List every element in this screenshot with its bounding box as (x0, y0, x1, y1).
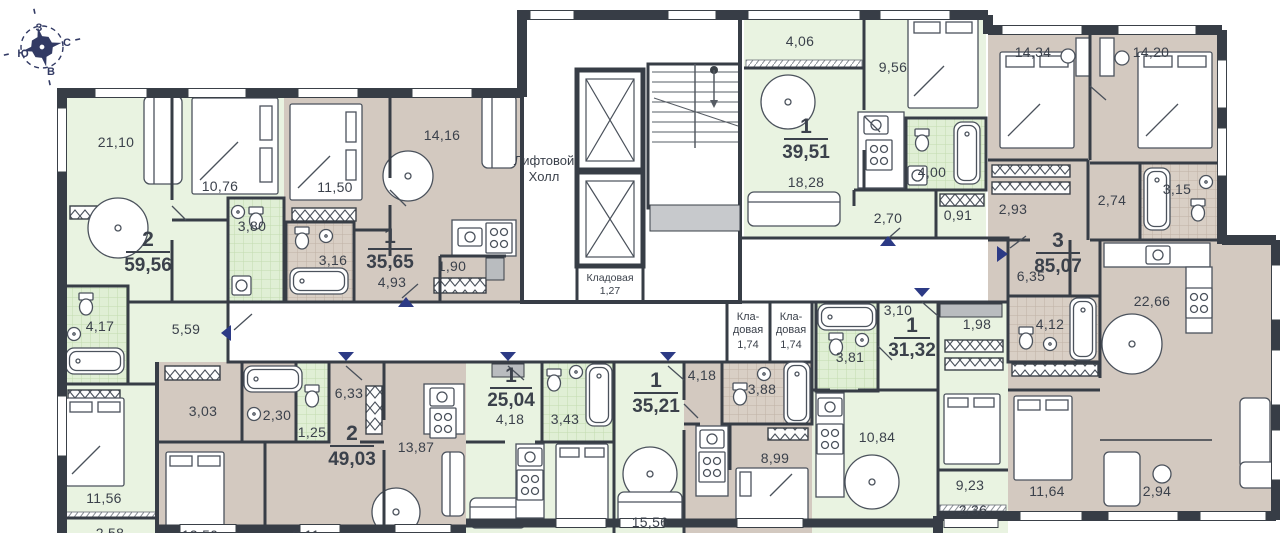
sofa-icon (144, 96, 182, 184)
room-label-14-20: 14,20 (1133, 44, 1170, 60)
bed-icon (944, 394, 1000, 464)
sink-icon (248, 408, 261, 421)
storage-left-area-label: 1,74 (737, 339, 758, 351)
apt-35-21-total: 35,21 (632, 396, 680, 417)
toilet-icon (1191, 199, 1205, 221)
room-label-2-74: 2,74 (1098, 192, 1126, 208)
room-label-3-81: 3,81 (836, 349, 864, 365)
balcony-railing (746, 60, 862, 67)
apt-25-04-rooms: 1 (505, 364, 517, 387)
bathtub-icon (586, 364, 612, 426)
room-label-14-34: 14,34 (1015, 44, 1052, 60)
kitchen-icon (696, 426, 728, 496)
toilet-icon (915, 129, 929, 151)
entrance-arrow-icon (660, 352, 676, 361)
storage-left-label-2: довая (733, 324, 763, 336)
bathtub-icon (244, 366, 302, 392)
room-label-21-10: 21,10 (98, 134, 135, 150)
utility-shaft (486, 258, 504, 280)
room-label-9-56: 9,56 (879, 59, 907, 75)
room-label-0-91: 0,91 (944, 207, 972, 223)
room-label-3-16: 3,16 (319, 252, 347, 268)
sink-icon (1200, 176, 1213, 189)
apt-39-51-rooms: 1 (800, 115, 812, 138)
room-label-10-84: 10,84 (859, 429, 896, 445)
apt-59-56-rooms: 2 (142, 228, 154, 251)
elevator-icon (577, 70, 643, 170)
room-label-15-56: 15,56 (632, 514, 669, 530)
room-label-14-16: 14,16 (424, 127, 461, 143)
apt-85-07-rooms: 3 (1052, 229, 1064, 252)
entrance-arrow-icon (914, 288, 930, 297)
storage-right-label-1: Кла- (780, 311, 803, 323)
compass-north-label: С (63, 37, 71, 49)
corridor-b (740, 238, 1008, 302)
entrance-arrow-icon (338, 352, 354, 361)
bathtub-icon (954, 122, 980, 184)
floor-plan-drawing: З С Ю В 21,10 10,76 3,80 4,17 5,59 11,56… (0, 0, 1280, 533)
room-label-1-98: 1,98 (963, 316, 991, 332)
room-label-8-99: 8,99 (761, 450, 789, 466)
room-label-10-76: 10,76 (202, 178, 239, 194)
sofa-icon (748, 192, 840, 226)
sink-icon (232, 206, 245, 219)
stairs-icon (652, 64, 738, 148)
kitchen-icon (452, 220, 516, 256)
room-label-3-88: 3,88 (748, 381, 776, 397)
room-label-4-93: 4,93 (378, 274, 406, 290)
apt-35-65-total: 35,65 (366, 252, 414, 273)
stairs-area (648, 64, 740, 208)
apt-49-03-total: 49,03 (328, 449, 376, 470)
storage-hall-area-label: 1,27 (600, 285, 621, 297)
bathtub-icon (1144, 168, 1170, 230)
sink-icon (68, 328, 81, 341)
elevator-icon (577, 172, 643, 266)
apt-35-65-rooms: 1 (384, 225, 396, 248)
bed-icon (736, 468, 808, 526)
compass-south-label: Ю (17, 48, 28, 60)
apt-59-56-total: 59,56 (124, 255, 172, 276)
room-label-4-06: 4,06 (786, 33, 814, 49)
storage-right-area-label: 1,74 (780, 339, 801, 351)
room-label-2-70: 2,70 (874, 210, 902, 226)
bed-icon (66, 398, 124, 486)
table-icon (845, 455, 899, 509)
sofa-icon (442, 452, 464, 516)
corridor-a (228, 302, 727, 362)
room-label-4-18a: 4,18 (496, 411, 524, 427)
toilet-icon (295, 227, 309, 249)
bed-icon (908, 18, 978, 108)
kitchen-icon (816, 393, 844, 497)
room-label-4-18b: 4,18 (688, 367, 716, 383)
kitchen-icon (516, 444, 544, 518)
apt-85-07-total: 85,07 (1034, 256, 1082, 277)
sink-icon (856, 334, 869, 347)
sofa-icon (482, 94, 516, 168)
room-label-5-59: 5,59 (172, 321, 200, 337)
entrance-arrow-icon (500, 352, 516, 361)
elevator-hall-label-2: Холл (529, 169, 560, 184)
compass-west-label: З (36, 22, 43, 34)
bed-icon (166, 452, 224, 533)
room-label-11-50: 11,50 (317, 179, 353, 195)
elevator-stairs (577, 64, 740, 266)
room-label-11-56: 11,56 (86, 490, 122, 506)
room-label-1-90: 1,90 (438, 258, 466, 274)
bathtub-icon (818, 304, 876, 330)
toilet-icon (79, 293, 93, 315)
bathtub-icon (290, 268, 348, 294)
room-label-2-94: 2,94 (1143, 483, 1171, 499)
apt-25-04-total: 25,04 (487, 390, 535, 411)
bed-icon (556, 444, 608, 520)
toilet-icon (733, 383, 747, 405)
apt-35-21-rooms: 1 (650, 369, 662, 392)
stairs-landing (650, 205, 740, 231)
room-label-4-17: 4,17 (86, 318, 114, 334)
apt-39-51-total: 39,51 (782, 142, 830, 163)
table-icon (1102, 314, 1162, 374)
room-label-2-30: 2,30 (263, 407, 291, 423)
storage-right-label-2: довая (776, 324, 806, 336)
apt-49-03-rooms: 2 (346, 422, 358, 445)
room-label-3-03: 3,03 (189, 403, 217, 419)
kitchen-icon (424, 384, 464, 438)
washer-icon (232, 276, 251, 295)
room-label-9-23: 9,23 (956, 477, 984, 493)
room-label-11-64: 11,64 (1029, 483, 1065, 499)
room-label-3-15: 3,15 (1163, 181, 1191, 197)
room-label-3-43: 3,43 (551, 411, 579, 427)
sink-icon (320, 230, 333, 243)
sink-icon (1044, 338, 1057, 351)
room-label-4-12: 4,12 (1036, 316, 1064, 332)
bed-icon (1014, 396, 1072, 480)
bathtub-icon (784, 362, 810, 424)
table-icon (88, 198, 148, 258)
room-label-22-66: 22,66 (1134, 293, 1171, 309)
storage-left-label-1: Кла- (737, 311, 760, 323)
room-label-1-25: 1,25 (298, 424, 326, 440)
room-label-12-50: 12,50 (182, 527, 219, 533)
bathtub-icon (1070, 298, 1096, 360)
room-label-2-93: 2,93 (999, 201, 1027, 217)
room-label-6-33: 6,33 (335, 385, 363, 401)
bathtub-icon (66, 348, 124, 374)
room-label-2-58: 2,58 (96, 525, 124, 533)
apt-31-32-rooms: 1 (906, 314, 918, 337)
toilet-icon (547, 369, 561, 391)
toilet-icon (305, 385, 319, 407)
room-label-13-87: 13,87 (398, 439, 435, 455)
apt-31-32-total: 31,32 (888, 340, 936, 361)
sink-icon (758, 368, 771, 381)
floor-plan: З С Ю В 21,10 10,76 3,80 4,17 5,59 11,56… (0, 0, 1280, 533)
toilet-icon (1019, 327, 1033, 349)
room-label-2-36: 2,36 (959, 502, 987, 518)
room-label-4-00: 4,00 (918, 164, 946, 180)
elevator-hall-label-1: Лифтовой (514, 153, 575, 168)
bed-icon (1000, 52, 1074, 148)
sink-icon (570, 366, 583, 379)
storage-hall-label: Кладовая (586, 272, 633, 284)
bed-icon (1138, 52, 1212, 148)
compass-icon: З С Ю В (0, 0, 92, 97)
room-label-9-11: 9,11 (292, 527, 319, 533)
compass-east-label: В (47, 66, 55, 78)
room-label-18-28: 18,28 (788, 174, 825, 190)
room-label-3-80: 3,80 (238, 218, 266, 234)
